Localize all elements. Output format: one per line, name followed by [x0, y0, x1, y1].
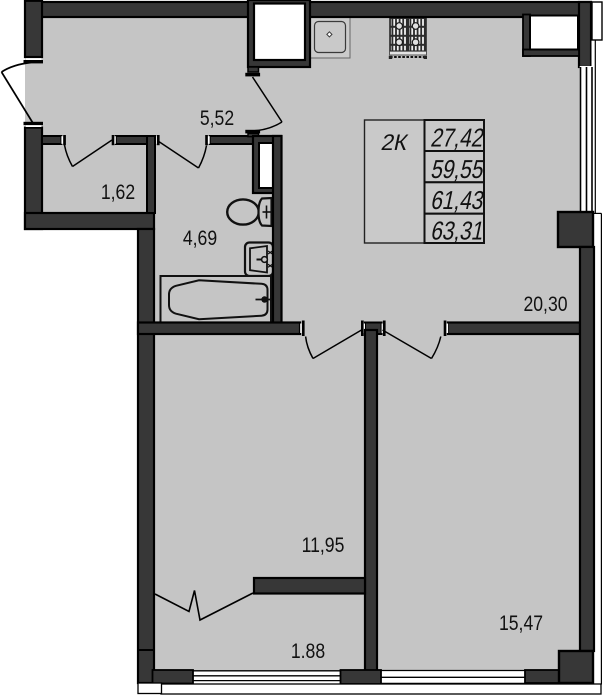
svg-text:27,42: 27,42 [429, 124, 487, 153]
svg-text:11,95: 11,95 [302, 533, 345, 557]
svg-text:63,31: 63,31 [429, 216, 487, 245]
svg-text:1.88: 1.88 [291, 639, 325, 663]
svg-text:5,52: 5,52 [200, 106, 234, 130]
svg-text:1,62: 1,62 [101, 180, 135, 204]
svg-text:61,43: 61,43 [429, 186, 487, 215]
svg-text:15,47: 15,47 [499, 611, 543, 635]
svg-text:4,69: 4,69 [183, 226, 217, 250]
svg-text:59,55: 59,55 [429, 155, 487, 184]
svg-text:20,30: 20,30 [523, 292, 567, 316]
